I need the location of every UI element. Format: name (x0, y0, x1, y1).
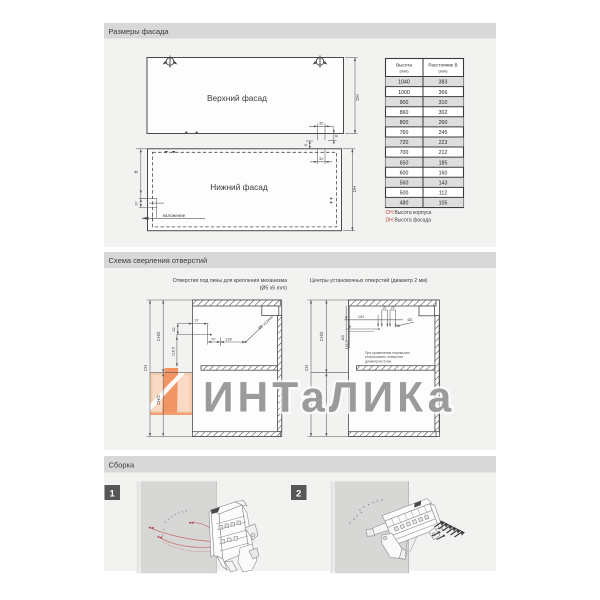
svg-text:Отверстия под пины для креплен: Отверстия под пины для крепления механиз… (173, 278, 287, 284)
svg-text:900: 900 (400, 100, 409, 106)
svg-text:560: 560 (400, 180, 409, 186)
svg-text:CH: CH (304, 365, 309, 371)
svg-text:1040: 1040 (398, 80, 410, 86)
svg-text:DH: DH (352, 186, 357, 192)
svg-text:Сборка: Сборка (109, 460, 136, 469)
svg-text:Высота корпуса: Высота корпуса (395, 210, 432, 216)
svg-text:148.5: 148.5 (345, 341, 349, 350)
svg-text:Размеры фасада: Размеры фасада (109, 27, 170, 36)
svg-text:128: 128 (225, 337, 231, 341)
svg-text:(mm): (mm) (438, 69, 448, 74)
svg-text:37: 37 (194, 319, 198, 323)
svg-text:160: 160 (439, 170, 448, 176)
svg-text:CH/2: CH/2 (156, 331, 161, 341)
svg-text:8: 8 (335, 135, 339, 137)
svg-text:32: 32 (172, 327, 176, 331)
svg-text:480: 480 (400, 201, 409, 207)
svg-text:600: 600 (400, 170, 409, 176)
svg-text:500: 500 (400, 191, 409, 197)
svg-text:ИНТаЛИКа: ИНТаЛИКа (203, 375, 455, 422)
svg-text:наложение: наложение (163, 213, 186, 218)
svg-text:CH:: CH: (386, 210, 395, 216)
svg-text:Центры установочных отверстий: Центры установочных отверстий (диаметр 2… (310, 277, 428, 284)
svg-text:26: 26 (391, 306, 395, 310)
svg-text:185: 185 (439, 160, 448, 166)
svg-text:57: 57 (211, 337, 215, 341)
svg-text:CH: CH (143, 365, 148, 371)
svg-text:116.5: 116.5 (171, 347, 175, 356)
svg-text:650: 650 (400, 160, 409, 166)
svg-text:Высота фасада: Высота фасада (395, 218, 432, 224)
svg-text:105: 105 (439, 201, 448, 207)
svg-text:310: 310 (439, 100, 448, 106)
svg-text:700: 700 (400, 150, 409, 156)
svg-text:Верхний фасад: Верхний фасад (207, 93, 267, 103)
svg-text:диаметром 5 мм.: диаметром 5 мм. (365, 359, 392, 363)
svg-text:37: 37 (135, 201, 139, 205)
svg-text:223: 223 (439, 140, 448, 146)
svg-text:32: 32 (319, 121, 324, 126)
svg-text:2: 2 (296, 489, 301, 500)
svg-text:302: 302 (439, 110, 448, 116)
svg-text:Схема сверления отверстий: Схема сверления отверстий (109, 256, 208, 265)
svg-text:1000: 1000 (398, 90, 410, 96)
svg-text:9: 9 (304, 144, 308, 146)
svg-text:32: 32 (319, 156, 324, 161)
svg-text:26: 26 (383, 306, 387, 310)
svg-text:CH/2: CH/2 (319, 331, 324, 341)
svg-text:800: 800 (400, 120, 409, 126)
svg-text:260: 260 (439, 120, 448, 126)
svg-text:DH: DH (355, 94, 360, 100)
svg-text:B: B (134, 170, 139, 173)
svg-text:115: 115 (341, 335, 345, 341)
svg-text:Ø2: Ø2 (407, 318, 412, 322)
svg-text:(Ø5 x5 mm): (Ø5 x5 mm) (260, 286, 288, 292)
svg-text:760: 760 (400, 130, 409, 136)
svg-text:(mm): (mm) (399, 69, 409, 74)
svg-text:Расстояние B: Расстояние B (428, 63, 457, 68)
svg-text:245: 245 (439, 130, 448, 136)
svg-text:143: 143 (439, 180, 448, 186)
svg-text:112: 112 (439, 191, 447, 197)
svg-text:860: 860 (400, 110, 409, 116)
svg-text:Нижний фасад: Нижний фасад (210, 182, 268, 192)
svg-text:101: 101 (358, 315, 364, 319)
svg-text:1: 1 (110, 489, 116, 500)
svg-text:383: 383 (439, 80, 448, 86)
svg-text:Высота: Высота (396, 63, 412, 68)
svg-text:DH:: DH: (386, 218, 395, 224)
svg-text:720: 720 (400, 140, 409, 146)
svg-text:366: 366 (439, 90, 448, 96)
svg-text:212: 212 (439, 150, 448, 156)
svg-text:CH/2: CH/2 (156, 394, 161, 404)
